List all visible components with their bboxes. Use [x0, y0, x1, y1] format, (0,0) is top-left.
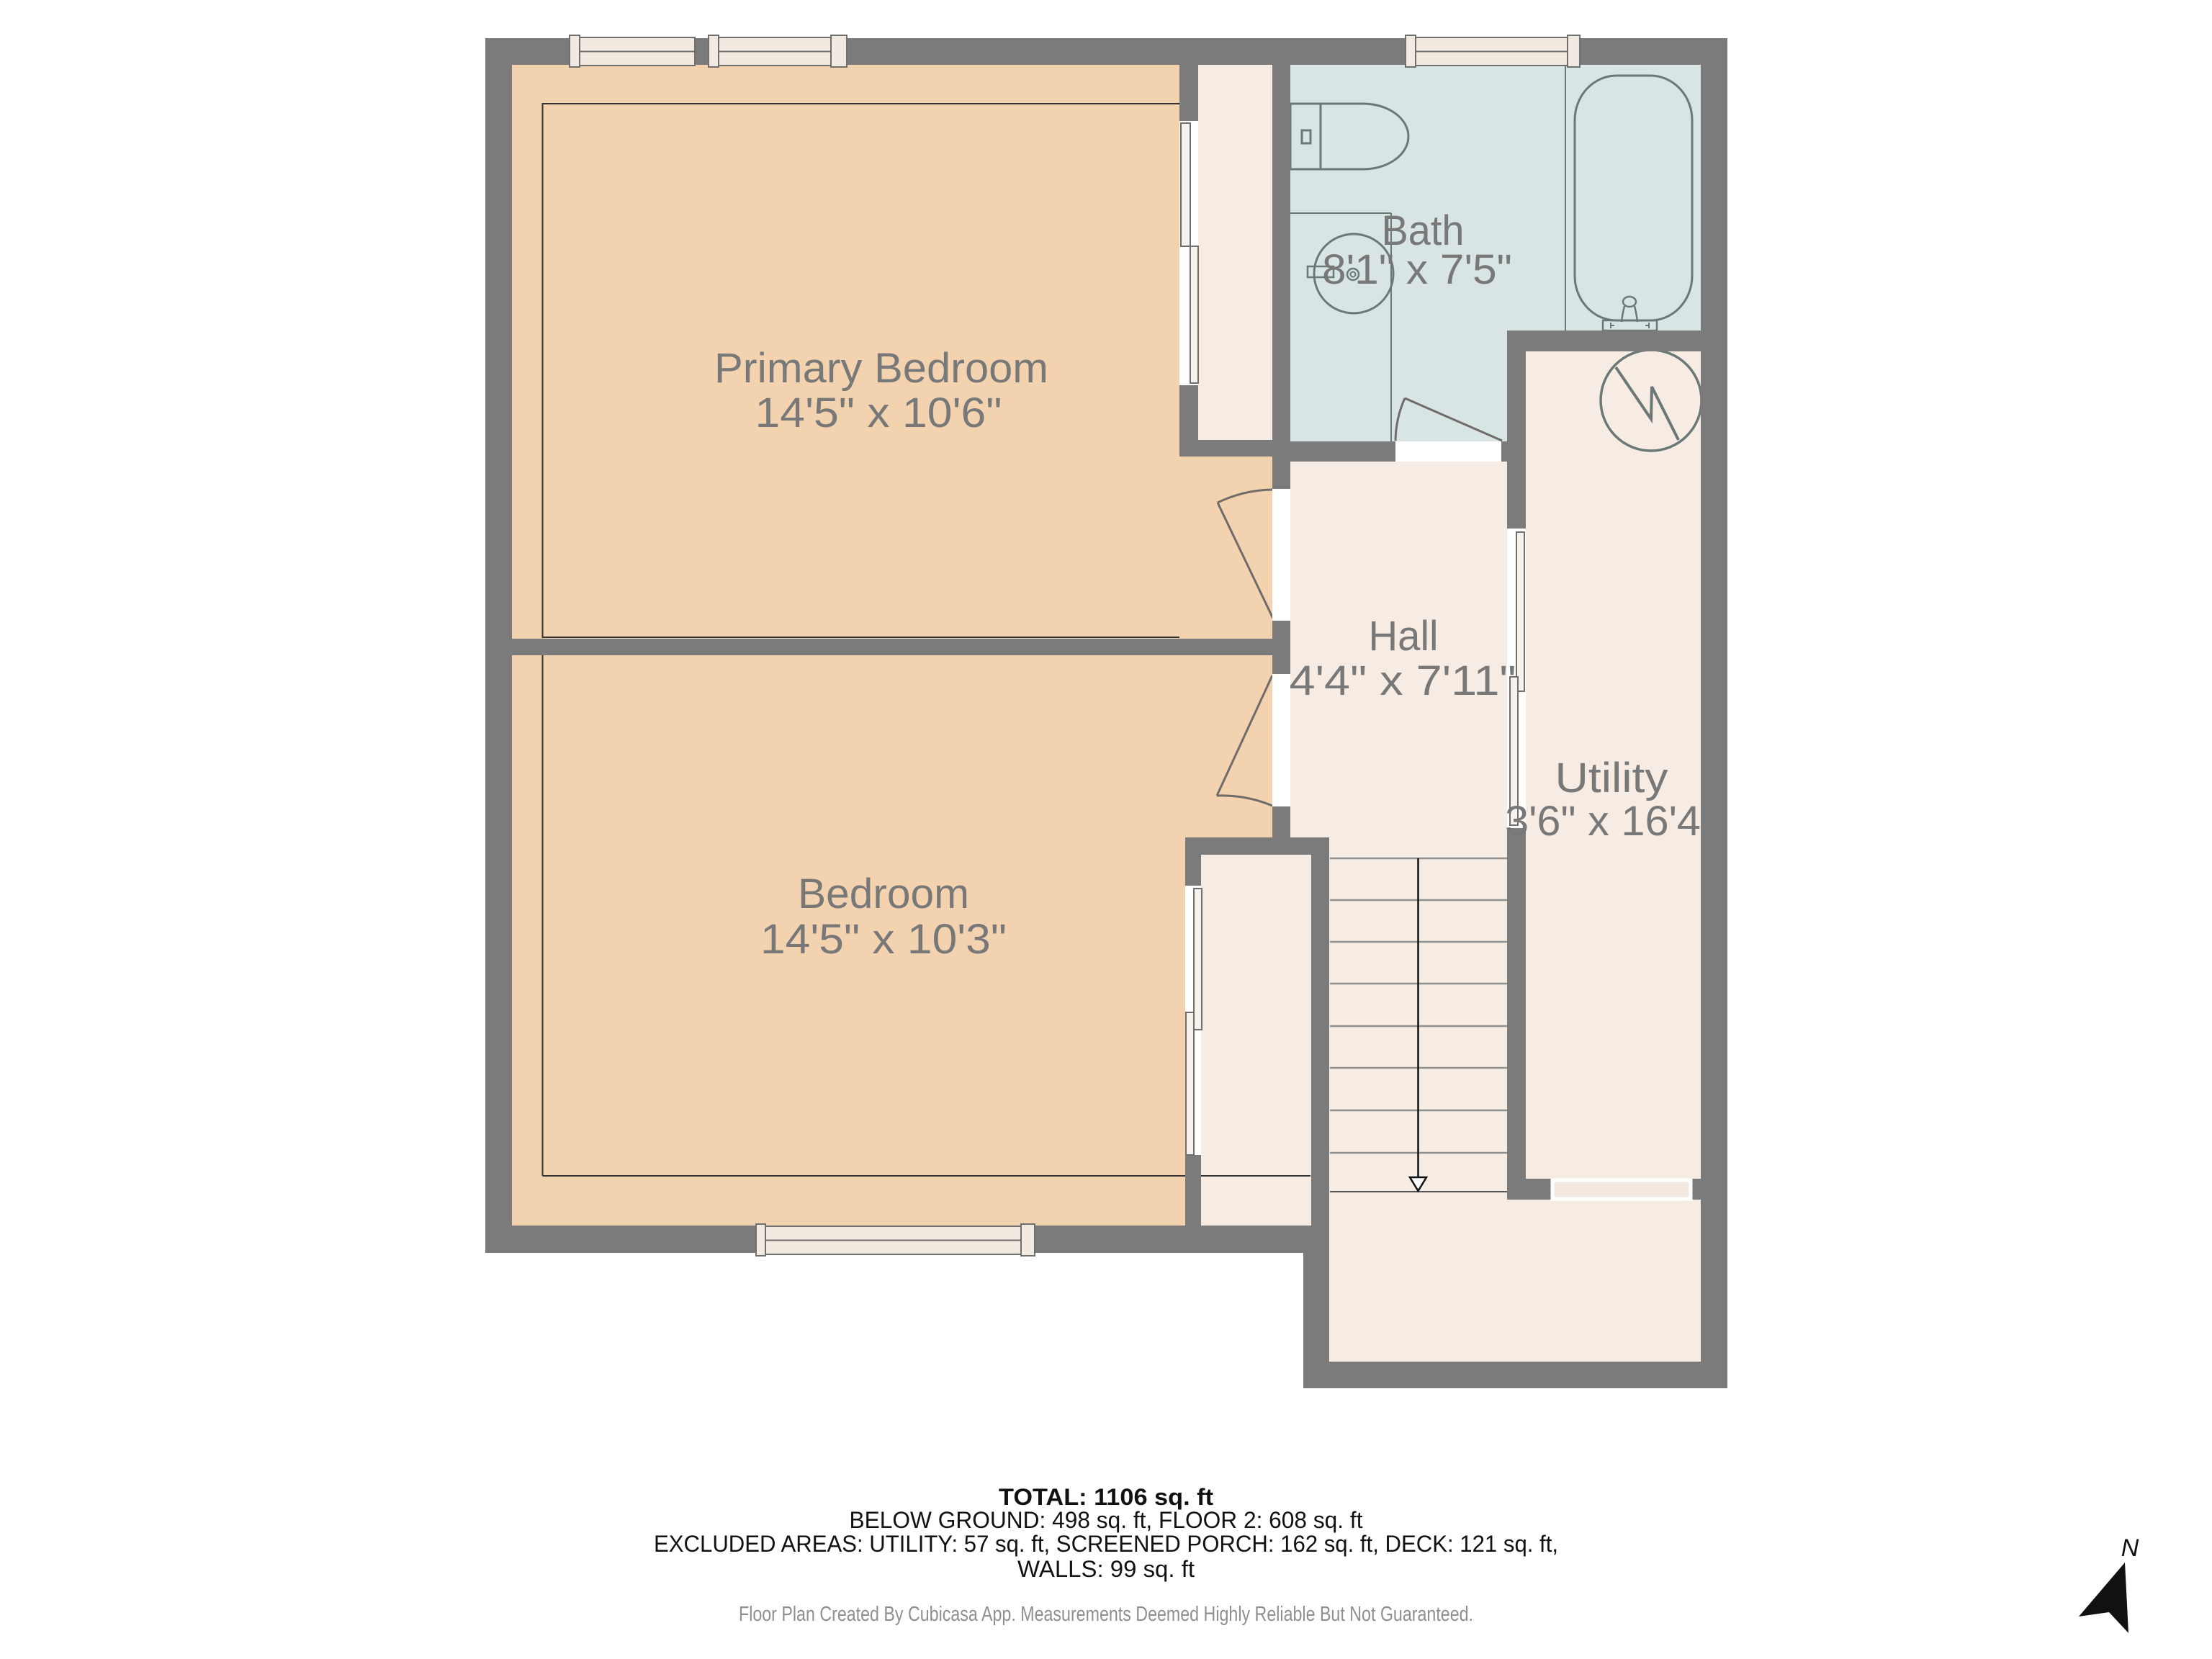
svg-text:3'6" x 16'4: 3'6" x 16'4 — [1505, 798, 1701, 845]
svg-text:N: N — [2121, 1534, 2139, 1562]
svg-text:Hall: Hall — [1369, 613, 1439, 660]
svg-text:Utility: Utility — [1555, 755, 1668, 801]
svg-text:BELOW GROUND: 498 sq. ft, FLOO: BELOW GROUND: 498 sq. ft, FLOOR 2: 608 s… — [850, 1507, 1363, 1533]
svg-text:14'5" x 10'3": 14'5" x 10'3" — [760, 916, 1007, 963]
svg-text:WALLS: 99 sq. ft: WALLS: 99 sq. ft — [1017, 1556, 1195, 1582]
svg-text:Floor Plan Created By Cubicasa: Floor Plan Created By Cubicasa App. Meas… — [739, 1603, 1473, 1626]
svg-text:EXCLUDED AREAS: UTILITY: 57 sq: EXCLUDED AREAS: UTILITY: 57 sq. ft, SCRE… — [654, 1531, 1558, 1557]
svg-text:4'4" x 7'11": 4'4" x 7'11" — [1290, 657, 1516, 704]
svg-text:14'5" x 10'6": 14'5" x 10'6" — [755, 390, 1002, 436]
svg-text:Primary Bedroom: Primary Bedroom — [714, 345, 1048, 392]
svg-text:TOTAL: 1106 sq. ft: TOTAL: 1106 sq. ft — [999, 1484, 1213, 1510]
svg-text:Bedroom: Bedroom — [798, 871, 969, 917]
svg-text:8'1" x 7'5": 8'1" x 7'5" — [1322, 246, 1512, 293]
